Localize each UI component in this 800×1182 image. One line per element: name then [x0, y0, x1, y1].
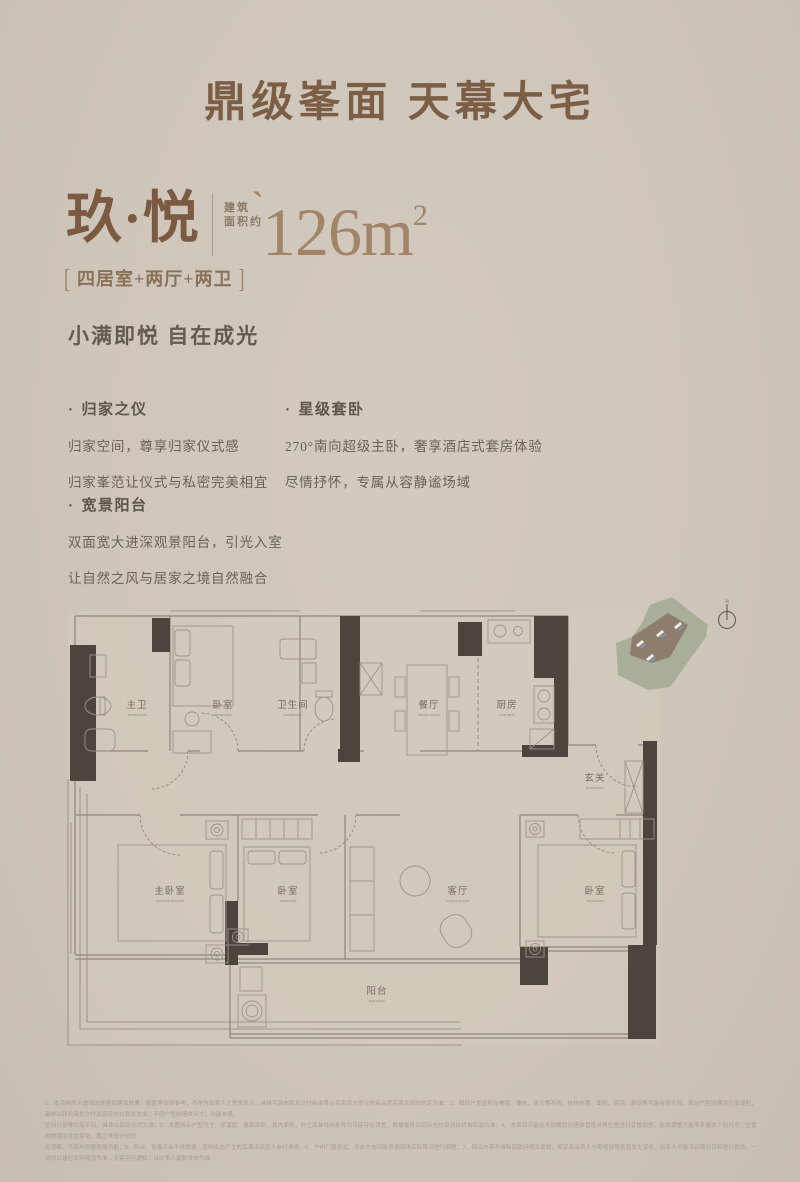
feature-title: ·归家之仪: [68, 398, 283, 419]
feature-title-text: 星级套卧: [299, 402, 365, 418]
feature-line: 270°南向超级主卧，奢享酒店式套房体验: [285, 435, 615, 455]
feature-title-text: 宽景阳台: [82, 498, 148, 514]
floorplan-area: 主卫 BATHROOM 卧室 BEDROOM 卫生间 BATHROOM 餐厅 D…: [60, 593, 760, 1058]
room-label: 厨房: [496, 699, 517, 711]
room-label-en: MASTER BED RM: [156, 899, 184, 903]
floorplan-svg: 主卫 BATHROOM 卧室 BEDROOM 卫生间 BATHROOM 餐厅 D…: [60, 593, 760, 1058]
room-label: 卧室: [277, 885, 298, 897]
feature-homecoming: ·归家之仪 归家空间，尊享归家仪式感 归家峯范让仪式与私密完美相宜: [68, 398, 283, 491]
disclaimer: 1、本资料所示虚拟的数据及建筑效果、配置等仅供参考，不作为出卖人之意思表示，具体…: [45, 1099, 757, 1165]
page-title: 鼎级峯面 天幕大宅: [0, 68, 800, 129]
floor-tint: [68, 611, 660, 1045]
bracket-right: ]: [239, 264, 246, 294]
disclaimer-line: 空间分割等均有不同，具体以实际交付为准；3、本图所示户型尺寸、保温层、建筑面积、…: [45, 1121, 757, 1143]
room-label: 餐厅: [418, 699, 439, 711]
area-superscript: 2: [413, 199, 428, 232]
disclaimer-line: 1、本资料所示虚拟的数据及建筑效果、配置等仅供参考，不作为出卖人之意思表示，具体…: [45, 1099, 757, 1121]
room-label-en: BALCONY: [369, 999, 386, 1003]
room-label-en: ENTRANCE: [586, 786, 604, 790]
feature-balcony: ·宽景阳台 双面宽大进深观景阳台，引光入室 让自然之风与居家之境自然融合: [68, 494, 398, 587]
bullet: ·: [68, 402, 75, 418]
area-unit: m: [361, 194, 413, 270]
room-label: 主卫: [126, 699, 147, 711]
compass-icon: N: [719, 600, 736, 629]
spec-line: [四居室+两厅+两卫]: [64, 265, 246, 291]
room-label-en: LIVING ROOM: [447, 899, 470, 903]
room-label: 阳台: [366, 985, 387, 997]
product-name: 玖·悦: [66, 184, 200, 254]
bullet: ·: [68, 498, 75, 514]
room-label-en: BEDROOM: [280, 899, 297, 903]
feature-title-text: 归家之仪: [82, 402, 148, 418]
feature-line: 归家空间，尊享归家仪式感: [68, 435, 283, 455]
feature-title: ·星级套卧: [285, 398, 615, 419]
room-label-en: BEDROOM: [215, 713, 232, 717]
room-label: 卧室: [212, 699, 233, 711]
slogan: 小满即悦 自在成光: [68, 320, 259, 350]
room-label: 客厅: [447, 885, 468, 897]
bullet: ·: [285, 402, 292, 418]
room-label: 卫生间: [277, 699, 309, 711]
room-label: 卧室: [584, 885, 605, 897]
bracket-left: [: [64, 264, 71, 294]
room-label: 主卧室: [154, 885, 186, 897]
room-label-en: BATHROOM: [283, 713, 302, 717]
disclaimer-line: 化范畴，不影响房屋使用功能；5、阳台、设备平台不得改造，否则由此产生的后果由买受…: [45, 1143, 757, 1165]
area-number: 126: [262, 194, 361, 270]
poster-page: 鼎级峯面 天幕大宅 玖·悦 建筑 面积约 ` 126m2 [四居室+两厅+两卫]…: [0, 0, 800, 1182]
site-plan-icon: [616, 597, 708, 690]
feature-title: ·宽景阳台: [68, 494, 398, 515]
compass-label: N: [725, 600, 729, 605]
feature-line: 尽情抒怀，专属从容静谧场域: [285, 471, 615, 491]
feature-master-suite: ·星级套卧 270°南向超级主卧，奢享酒店式套房体验 尽情抒怀，专属从容静谧场域: [285, 398, 615, 491]
feature-line: 双面宽大进深观景阳台，引光入室: [68, 531, 398, 551]
divider-line: [212, 194, 213, 256]
feature-line: 让自然之风与居家之境自然融合: [68, 567, 398, 587]
room-label-en: KITCHEN: [500, 713, 515, 717]
spec-text: 四居室+两厅+两卫: [71, 269, 239, 289]
area-value: 126m2: [262, 180, 428, 268]
feature-line: 归家峯范让仪式与私密完美相宜: [68, 471, 283, 491]
room-label-en: DINING ROOM: [417, 713, 440, 717]
room-label-en: BEDROOM: [587, 899, 604, 903]
room-label: 玄关: [584, 772, 605, 784]
room-label-en: BATHROOM: [127, 713, 146, 717]
